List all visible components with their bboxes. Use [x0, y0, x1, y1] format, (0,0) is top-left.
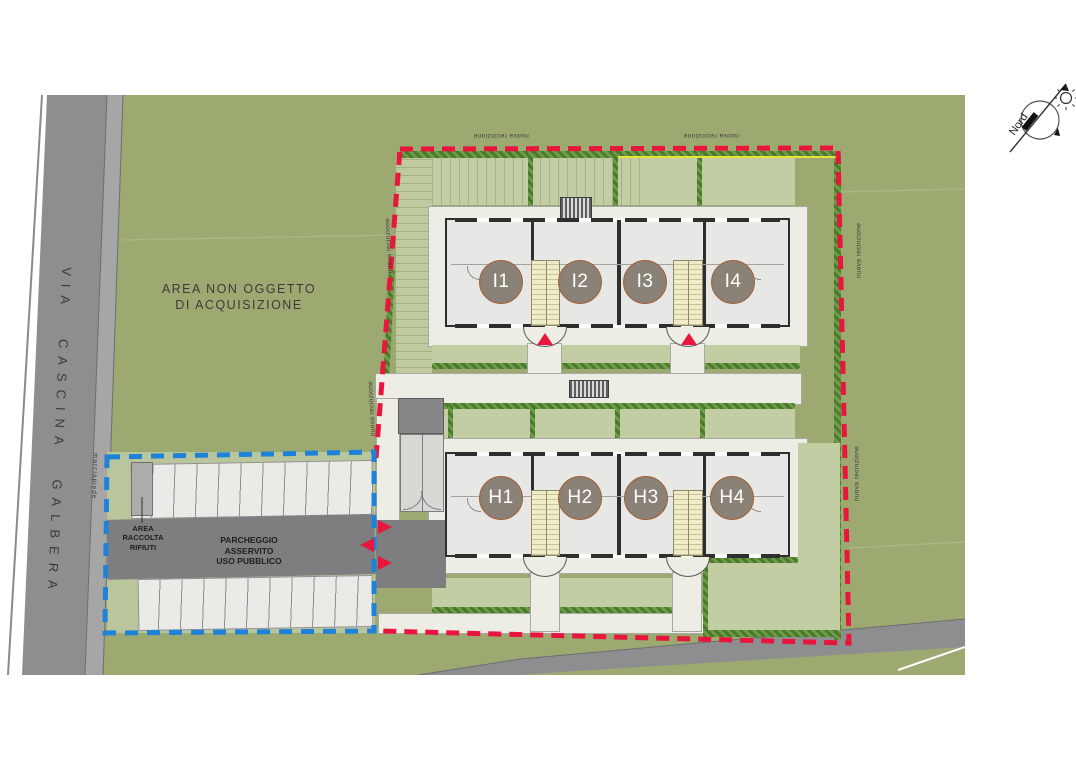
terraced-garden-north: [405, 158, 640, 205]
road-lane-marking: [898, 647, 965, 670]
fence-label-north-1: nuova recinzione: [468, 132, 534, 139]
area-exclusion-line1: AREA NON OGGETTO: [150, 281, 328, 297]
path-entrance-h1-h2: [530, 572, 560, 632]
parking-label-line2: ASSERVITO: [195, 546, 303, 557]
unit-badge-i4: I4: [711, 260, 755, 304]
fence-label-west-1: nuova recinzione: [384, 212, 394, 278]
shelter-pergola-central: [569, 380, 609, 398]
sun-rays: [1054, 86, 1076, 110]
fence-label-east-2: nuova recinzione: [854, 441, 861, 507]
shelter-pergola-i: [560, 197, 592, 219]
public-parking-label: PARCHEGGIO ASSERVITO USO PUBBLICO: [195, 535, 303, 567]
unit-label: I3: [637, 271, 654, 293]
party-wall: [703, 454, 706, 555]
area-exclusion-label: AREA NON OGGETTO DI ACQUISIZIONE: [150, 281, 328, 314]
hedge-garden-south-east-top: [703, 557, 798, 563]
parcel-line: [849, 542, 965, 548]
waste-label-line2: RACCOLTA: [113, 533, 173, 542]
hedge-south-of-i: [432, 363, 800, 369]
paving-ramp-west: [376, 398, 400, 522]
parking-stalls-top-row: [131, 460, 374, 519]
parking-label-line3: USO PUBBLICO: [195, 556, 303, 567]
waste-label-line1: AREA: [113, 524, 173, 533]
compass-arrowhead-south: [1054, 128, 1060, 136]
garage-door-arc: [421, 491, 441, 510]
compass-north-label: Nord: [1007, 111, 1031, 137]
path-entrance-h3-h4: [672, 572, 702, 632]
stairwell-h1-h2: [531, 490, 560, 556]
north-compass: Nord: [992, 78, 1076, 164]
compass-arrowhead-north: [1060, 84, 1069, 91]
parking-stalls-bottom-row: [138, 575, 374, 631]
stairwell-h3-h4: [673, 490, 703, 556]
terraced-garden-west: [396, 158, 432, 392]
unit-badge-i1: I1: [479, 260, 523, 304]
path-entrance-i3-i4: [670, 343, 705, 377]
parcel-line: [123, 235, 398, 240]
unit-label: I2: [572, 271, 589, 293]
parcel-line: [838, 189, 965, 192]
unit-label: I1: [493, 271, 510, 293]
stairwell-i1-i2: [531, 260, 560, 326]
unit-label: I4: [725, 271, 742, 293]
site-plan-canvas: I1 I2 I3 I4 H1 H2 H3 H4: [0, 0, 1076, 780]
unit-badge-h3: H3: [624, 476, 668, 520]
ramp-roof: [398, 398, 444, 434]
stairwell-i3-i4: [673, 260, 703, 326]
site-plan-area: I1 I2 I3 I4 H1 H2 H3 H4: [0, 95, 965, 675]
waste-collection-stall: [131, 462, 153, 516]
waste-area-label: AREA RACCOLTA RIFIUTI: [113, 524, 173, 552]
road-outer-curb-line: [8, 95, 42, 675]
compass-circle: [1021, 101, 1059, 139]
party-wall: [703, 220, 706, 325]
garage-ramp: [400, 434, 444, 512]
party-wall: [617, 454, 621, 555]
unit-label: H3: [633, 487, 658, 509]
parking-label-line1: PARCHEGGIO: [195, 535, 303, 546]
waste-label-line3: RIFIUTI: [113, 543, 173, 552]
area-exclusion-line2: DI ACQUISIZIONE: [150, 297, 328, 313]
unit-label: H4: [719, 487, 744, 509]
drive-corridor: [376, 520, 446, 588]
path-entrance-i1-i2: [527, 343, 562, 377]
unit-badge-i3: I3: [623, 260, 667, 304]
fence-label-north-2: nuova recinzione: [678, 132, 744, 139]
unit-badge-h1: H1: [479, 476, 523, 520]
compass-north-pointer: [1024, 114, 1036, 129]
garage-door-arc: [403, 491, 423, 510]
sidewalk-label: marciapiede: [90, 453, 99, 500]
fence-label-east-1: nuova recinzione: [856, 218, 863, 284]
compass-axis-line: [1010, 84, 1066, 152]
sidewalk-edge: [85, 95, 107, 675]
sun-icon: [1061, 93, 1072, 104]
hedge-garden-south-east-bottom: [703, 630, 840, 637]
unit-badge-h4: H4: [710, 476, 754, 520]
garden-south-east: [703, 557, 798, 636]
garden-east-of-h: [798, 443, 840, 636]
unit-label: H2: [567, 487, 592, 509]
party-wall: [617, 220, 621, 325]
unit-label: H1: [488, 487, 513, 509]
hedge-north: [402, 151, 836, 158]
unit-badge-i2: I2: [558, 260, 602, 304]
hedge-north-of-h: [432, 403, 795, 409]
garden-north-east: [640, 158, 795, 205]
unit-badge-h2: H2: [558, 476, 602, 520]
street-name-label: VIA CASCINA GALBERA: [45, 267, 74, 597]
